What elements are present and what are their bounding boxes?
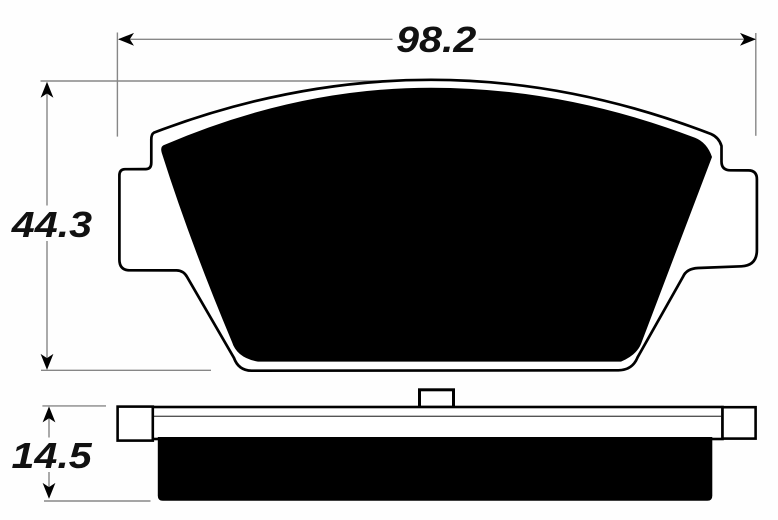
svg-text:98.2: 98.2 <box>396 20 477 60</box>
svg-text:44.3: 44.3 <box>11 205 93 245</box>
svg-text:14.5: 14.5 <box>11 436 93 476</box>
